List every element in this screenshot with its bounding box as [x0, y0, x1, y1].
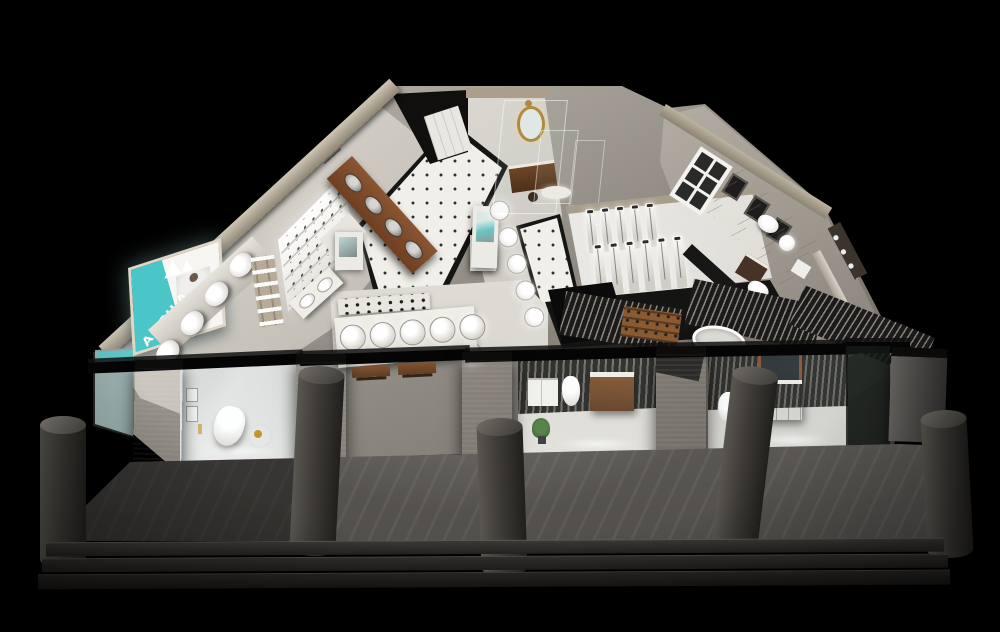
step [38, 570, 950, 590]
showroom-render: AGGILA [0, 0, 1000, 632]
entrance-steps [0, 0, 1000, 632]
column-cap [40, 416, 86, 434]
